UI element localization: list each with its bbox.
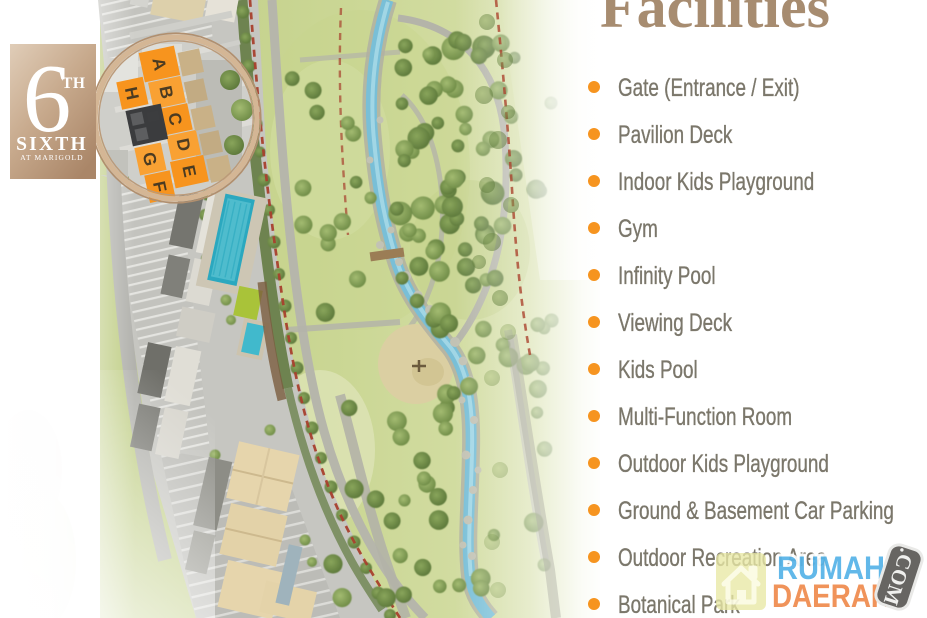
svg-text:SIXTH: SIXTH (16, 134, 88, 155)
svg-text:TH: TH (62, 75, 85, 92)
svg-text:DAERAH: DAERAH (772, 578, 891, 614)
svg-text:AT MARIGOLD: AT MARIGOLD (20, 153, 83, 162)
